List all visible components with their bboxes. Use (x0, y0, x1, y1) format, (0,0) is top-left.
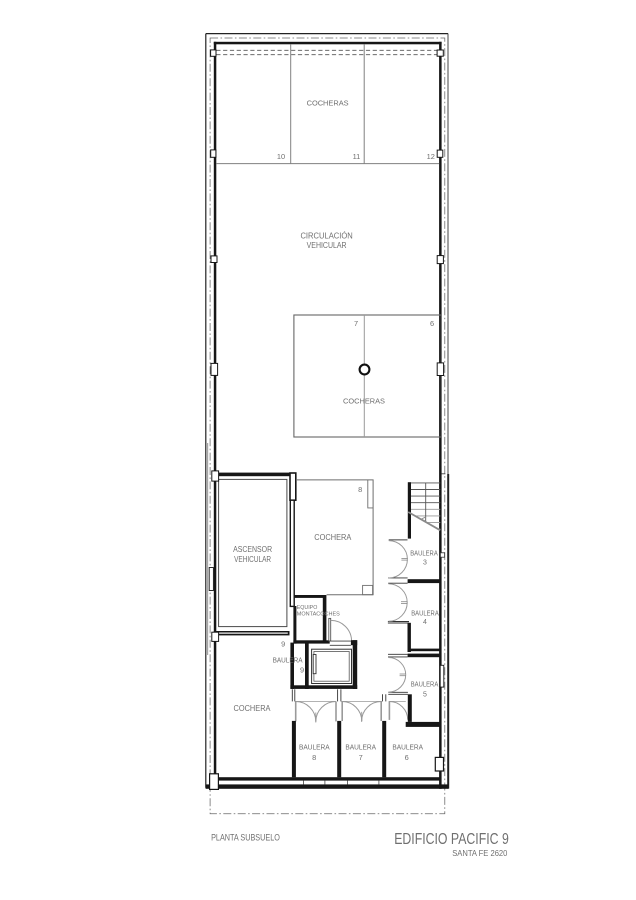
svg-text:BAULERA: BAULERA (345, 743, 376, 752)
svg-text:BAULERA: BAULERA (392, 743, 423, 752)
svg-text:8: 8 (312, 753, 316, 762)
svg-text:SANTA FE 2620: SANTA FE 2620 (452, 848, 507, 858)
svg-text:9: 9 (281, 639, 285, 648)
svg-text:9: 9 (300, 665, 304, 674)
svg-text:7: 7 (359, 753, 363, 762)
svg-text:7: 7 (354, 319, 358, 328)
svg-text:BAULERA: BAULERA (299, 743, 330, 752)
svg-text:COCHERAS: COCHERAS (307, 98, 349, 107)
svg-text:COCHERAS: COCHERAS (343, 396, 385, 405)
svg-text:10: 10 (277, 152, 285, 161)
svg-text:PLANTA SUBSUELO: PLANTA SUBSUELO (211, 832, 280, 842)
svg-text:CIRCULACIÓN: CIRCULACIÓN (300, 231, 352, 241)
svg-text:BAULERA: BAULERA (273, 656, 303, 665)
svg-text:12: 12 (427, 152, 435, 161)
svg-text:3: 3 (423, 560, 427, 567)
svg-text:VEHICULAR: VEHICULAR (234, 555, 271, 564)
svg-text:VEHICULAR: VEHICULAR (307, 241, 347, 250)
svg-text:COCHERA: COCHERA (234, 704, 272, 713)
svg-text:MONTACOCHES: MONTACOCHES (297, 611, 340, 617)
svg-text:8: 8 (358, 485, 362, 494)
svg-text:BAULERA: BAULERA (411, 681, 439, 688)
svg-text:BAULERA: BAULERA (411, 610, 439, 617)
svg-text:11: 11 (353, 152, 361, 161)
svg-text:BAULERA: BAULERA (410, 550, 438, 557)
svg-text:6: 6 (405, 753, 409, 762)
svg-text:4: 4 (423, 619, 427, 626)
svg-text:EQUIPO: EQUIPO (297, 605, 318, 611)
svg-text:ASCENSOR: ASCENSOR (233, 545, 272, 554)
svg-text:COCHERA: COCHERA (314, 533, 352, 542)
svg-text:5: 5 (423, 691, 427, 698)
svg-text:6: 6 (430, 319, 434, 328)
svg-text:EDIFICIO PACIFIC 9: EDIFICIO PACIFIC 9 (394, 831, 509, 848)
